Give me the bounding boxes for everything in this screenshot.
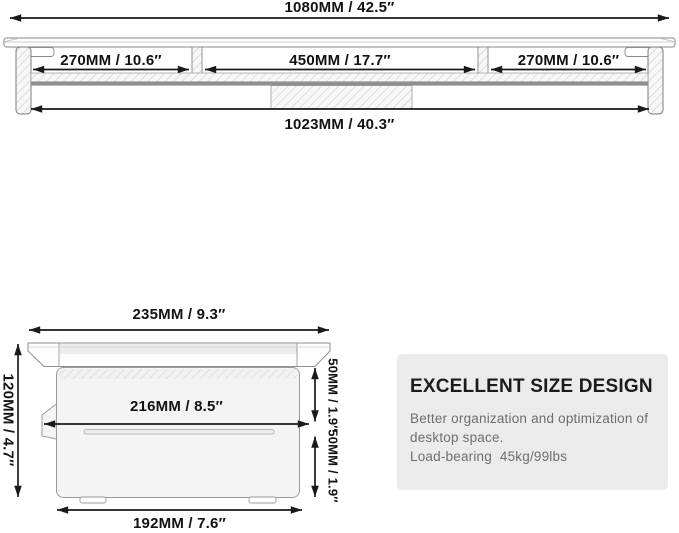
total-width-label: 1080MM / 42.5″ [0, 0, 679, 15]
card-line: Better organization and optimization of [410, 409, 658, 428]
side-view-diagram: 235MM / 9.3″ 120MM / 4.7″ 216MM / 8.5″ 5… [0, 290, 360, 533]
card-line: desktop space. [410, 428, 658, 447]
side-middle-width-label: 216MM / 8.5″ [44, 399, 309, 414]
right-section-label: 270MM / 10.6″ [491, 53, 646, 68]
middle-section-label: 450MM / 17.7″ [205, 53, 475, 68]
base-width-label: 1023MM / 40.3″ [0, 117, 679, 132]
card-line: Load-bearing 45kg/99lbs [410, 447, 658, 466]
size-design-card: EXCELLENT SIZE DESIGN Better organizatio… [397, 354, 668, 490]
side-top-width-label: 235MM / 9.3″ [29, 307, 329, 322]
top-shelf-board [4, 38, 675, 47]
card-title: EXCELLENT SIZE DESIGN [410, 376, 658, 398]
left-foot [80, 497, 106, 503]
side-height-label: 120MM / 4.7″ [1, 374, 16, 467]
right-leg [648, 47, 663, 114]
shelf-surface [31, 73, 648, 82]
left-section-label: 270MM / 10.6″ [33, 53, 189, 68]
card-body: Better organization and optimization of … [410, 409, 658, 466]
side-shelf-board [28, 343, 330, 367]
upper-clearance-label: 50MM / 1.9″ [326, 358, 341, 431]
side-base-width-label: 192MM / 7.6″ [57, 516, 302, 531]
right-foot [249, 497, 276, 503]
stand-body-hatch [59, 369, 297, 379]
left-leg [16, 47, 31, 114]
slot-groove [84, 430, 274, 435]
shelf-front-edge [31, 82, 648, 86]
center-riser-block [271, 86, 412, 109]
front-view-diagram: 1080MM / 42.5″ 270MM / 10.6″ 450MM / 17.… [0, 0, 679, 150]
lower-clearance-label: 50MM / 1.9″ [326, 429, 341, 502]
